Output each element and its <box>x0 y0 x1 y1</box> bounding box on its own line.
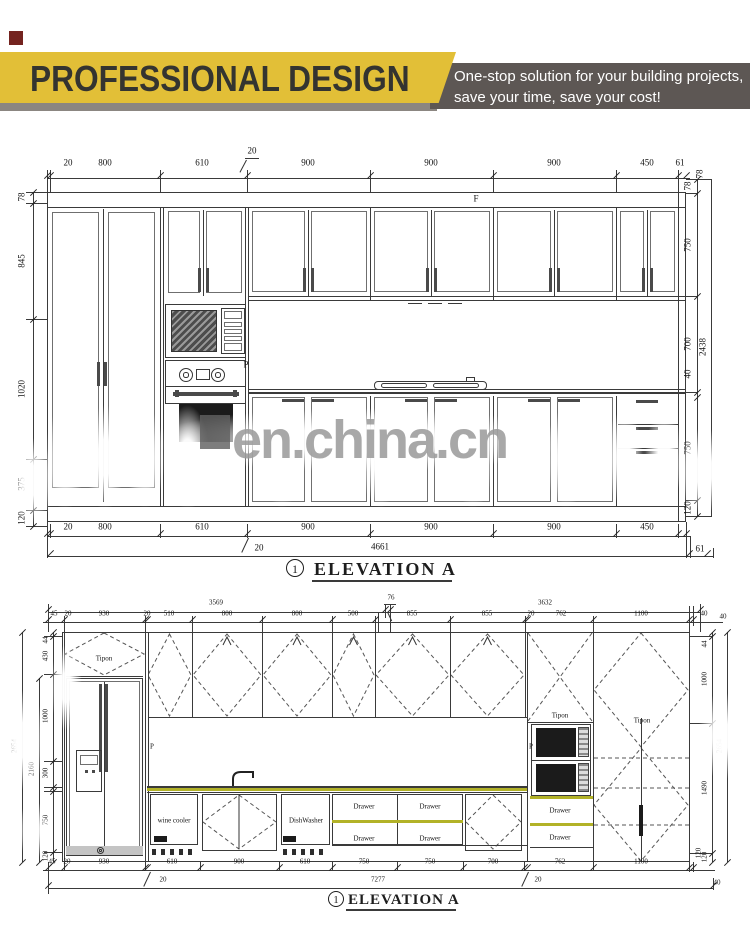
pantry-handle <box>639 805 643 836</box>
cad-line <box>686 179 712 180</box>
dim-label: 800 <box>98 159 112 168</box>
dim-label: 900 <box>301 159 315 168</box>
dim-label: 900 <box>547 159 561 168</box>
cabinet-door <box>311 211 367 292</box>
cornice-label: F <box>473 195 478 204</box>
cad-line <box>527 632 528 862</box>
cad-line <box>148 632 149 862</box>
dim-label: 300 <box>43 768 50 779</box>
dim-label: 120 <box>684 501 693 515</box>
cad-line <box>616 396 617 506</box>
dim-label: 76 <box>388 595 395 602</box>
dim-label: 610 <box>195 159 209 168</box>
cabinet-door <box>206 211 242 293</box>
dim-label: 430 <box>43 651 50 662</box>
cooktop-burner <box>433 383 479 388</box>
dim-label: 750 <box>684 238 693 252</box>
dim-leader <box>143 872 151 887</box>
sink-cabinet <box>202 794 277 851</box>
cad-line <box>39 678 40 862</box>
cad-line <box>192 632 193 717</box>
door-handle <box>435 399 457 402</box>
cad-line <box>47 522 48 558</box>
cad-line <box>145 632 146 862</box>
dim-label: 375 <box>18 477 27 491</box>
dim-label: 750 <box>43 815 50 826</box>
cad-line <box>248 296 686 297</box>
cad-line <box>428 303 442 304</box>
dim-label: 20 <box>255 544 264 553</box>
cad-line <box>103 209 104 502</box>
cad-line <box>554 210 555 296</box>
dim-label: 7277 <box>371 877 385 884</box>
dim-label: 78 <box>684 182 693 191</box>
drawer-label: Drawer <box>354 836 375 843</box>
microwave-button <box>224 311 242 319</box>
cad-line <box>709 622 723 623</box>
cabinet-door <box>620 211 644 292</box>
cad-line <box>47 556 713 557</box>
cad-line <box>308 210 309 296</box>
dim-label: 3569 <box>209 600 223 607</box>
cad-line <box>713 548 714 558</box>
microwave-button <box>224 343 242 351</box>
cad-line <box>375 632 376 717</box>
dim-label: 610 <box>195 523 209 532</box>
fridge-base <box>66 846 143 855</box>
dim-label: 762 <box>556 611 567 618</box>
oven-controls <box>578 727 589 757</box>
header-title: PROFESSIONAL DESIGN <box>30 58 410 100</box>
dim-label: 1000 <box>43 709 50 723</box>
corner-accent-square <box>9 31 23 45</box>
dim-label: 61 <box>696 545 705 554</box>
cad-line <box>641 718 642 862</box>
dim-label: 900 <box>301 523 315 532</box>
dim-leader <box>521 872 529 887</box>
panel-label: P <box>529 744 533 751</box>
dim-label: 855 <box>482 611 493 618</box>
door-handle <box>198 268 201 292</box>
dim-label: 900 <box>424 159 438 168</box>
dim-label: 20 <box>144 611 151 618</box>
door-handle <box>282 399 304 402</box>
dim-tick <box>724 859 731 866</box>
dim-label: 800 <box>292 611 303 618</box>
dim-label: 20 <box>248 147 257 156</box>
cad-line <box>647 210 648 296</box>
dim-label: 120 <box>696 848 703 859</box>
cad-line <box>527 722 593 723</box>
cabinet-door <box>374 211 428 292</box>
tagline-line-1: One-stop solution for your building proj… <box>430 63 750 87</box>
dim-label: 2160 <box>29 762 36 776</box>
door-handle <box>405 399 427 402</box>
dim-label: 20 <box>528 611 535 618</box>
watermark: en.china.cn <box>200 412 507 468</box>
tipon-label: Tipon <box>552 713 568 720</box>
dim-label: 20 <box>535 877 542 884</box>
dim-label: 500 <box>348 611 359 618</box>
tipon-label: Tipon <box>96 656 112 663</box>
cad-line <box>431 210 432 296</box>
door-handle <box>97 362 100 386</box>
cad-line <box>686 516 712 517</box>
tagline-line-2: save your time, save your cost! <box>430 87 750 108</box>
dim-label: 450 <box>640 159 654 168</box>
cad-line <box>66 676 143 677</box>
dim-label: 40 <box>701 611 708 618</box>
dim-label: 800 <box>98 523 112 532</box>
cad-line <box>593 632 594 862</box>
cad-line <box>47 506 686 507</box>
dim-label: 120 <box>18 511 27 525</box>
dim-label: 750 <box>359 859 370 866</box>
dim-label: 20 <box>64 523 73 532</box>
cad-line <box>47 207 686 208</box>
dim-leader <box>239 160 246 173</box>
base-cabinet <box>465 794 522 851</box>
cooktop-control <box>466 377 475 382</box>
cad-line <box>712 632 713 862</box>
dim-ext <box>26 203 47 204</box>
watermark-logo-square <box>200 415 230 449</box>
cad-line <box>53 632 54 862</box>
fridge-handle <box>105 684 108 772</box>
cad-line <box>525 632 526 717</box>
dim-ext <box>690 723 712 724</box>
dim-label: 20 <box>64 859 71 866</box>
wine-cooler-control <box>154 836 167 842</box>
dim-label: 700 <box>684 337 693 351</box>
dim-label: 44 <box>702 641 709 648</box>
oven-window <box>536 728 576 757</box>
dispenser-button <box>92 770 95 773</box>
oven-controls <box>578 763 589 792</box>
cad-line <box>408 303 422 304</box>
dim-ext <box>26 319 47 320</box>
drawer-label: Drawer <box>420 804 441 811</box>
elevation-1-number-circle: 1 <box>286 559 304 577</box>
cabinet-door <box>497 211 551 292</box>
door-handle <box>528 399 550 402</box>
dim-label: 930 <box>99 859 110 866</box>
elevation-2-number-circle: 1 <box>328 891 344 907</box>
dim-label: 900 <box>547 523 561 532</box>
dishwasher-control <box>283 836 296 842</box>
drawer-label: Drawer <box>420 836 441 843</box>
cad-line <box>384 604 396 605</box>
dim-label: 61 <box>676 159 685 168</box>
dim-label: 855 <box>407 611 418 618</box>
dishwasher-label: DishWasher <box>289 818 323 825</box>
door-handle <box>636 427 658 430</box>
cad-line <box>147 792 527 793</box>
cad-line <box>165 386 246 387</box>
cabinet-door <box>52 212 99 488</box>
dim-ext <box>26 192 47 193</box>
vent-grill <box>283 849 328 855</box>
cad-line <box>686 522 687 558</box>
cabinet-door <box>168 211 200 293</box>
drawer-divider-highlight <box>530 796 593 799</box>
elevation-2-title: ELEVATION A <box>348 892 460 909</box>
cabinet-door <box>252 211 305 292</box>
microwave-button <box>224 322 242 327</box>
dim-label: 20 <box>65 611 72 618</box>
page: One-stop solution for your building proj… <box>0 0 750 928</box>
microwave-window <box>171 310 217 352</box>
dim-label: 610 <box>300 859 311 866</box>
cad-line <box>203 210 204 296</box>
fridge-wheel <box>97 847 104 854</box>
cad-line <box>390 612 700 613</box>
dim-ext <box>690 636 712 637</box>
dim-ext <box>26 459 47 460</box>
dim-label: 1000 <box>702 672 709 686</box>
dim-label: 762 <box>555 859 566 866</box>
door-handle <box>104 362 107 386</box>
dim-label: 40 <box>720 614 727 621</box>
cabinet-door <box>557 211 613 292</box>
dim-label: 1490 <box>702 781 709 795</box>
dim-tick <box>709 859 716 866</box>
cad-line <box>48 888 713 889</box>
dim-label: 2654 <box>717 739 724 753</box>
dim-label: 1020 <box>18 380 27 398</box>
microwave-button <box>224 329 242 334</box>
cad-line <box>262 632 263 717</box>
dim-label: 20 <box>160 877 167 884</box>
cad-line <box>618 448 678 449</box>
tipon-label: Tipon <box>634 718 650 725</box>
dim-label: 750 <box>684 441 693 455</box>
cabinet-door <box>108 212 155 488</box>
dim-label: 45 <box>51 611 58 618</box>
dim-leader <box>241 538 249 553</box>
drawer-label: Drawer <box>550 835 571 842</box>
vent-grill <box>152 849 196 855</box>
panel-label: P <box>150 744 154 751</box>
cad-line <box>22 632 23 862</box>
dim-label: 800 <box>222 611 233 618</box>
door-handle <box>311 268 314 292</box>
cad-line <box>690 536 691 558</box>
cad-line <box>245 158 259 159</box>
oven-window <box>536 764 576 792</box>
cad-line <box>616 207 617 300</box>
door-handle <box>549 268 552 292</box>
drawer-divider-highlight <box>332 820 463 823</box>
door-handle <box>558 399 580 402</box>
cad-line <box>493 207 494 300</box>
dim-label: 450 <box>640 523 654 532</box>
door-handle <box>206 268 209 292</box>
dim-label: 78 <box>696 170 705 179</box>
cad-line <box>332 632 333 717</box>
header-yellow-ribbon: PROFESSIONAL DESIGN <box>0 52 456 103</box>
cabinet-door <box>434 211 490 292</box>
dim-label: 845 <box>18 254 27 268</box>
door-handle <box>303 268 306 292</box>
elevation-1-title-underline <box>312 580 452 582</box>
dim-label: 610 <box>167 859 178 866</box>
dim-label: 1100 <box>634 859 648 866</box>
cad-line <box>448 303 462 304</box>
door-handle <box>636 451 658 454</box>
door-handle <box>312 399 334 402</box>
elevation-2-title-underline <box>346 909 456 911</box>
door-handle <box>650 268 653 292</box>
dim-label: 45 <box>49 859 56 866</box>
oven-display <box>196 369 210 380</box>
dim-label: 44 <box>43 637 50 644</box>
cad-line <box>33 192 34 526</box>
cad-line <box>370 207 371 300</box>
door-handle <box>426 268 429 292</box>
cad-line <box>248 300 686 301</box>
dim-label: 2654 <box>12 739 19 753</box>
cad-line <box>148 717 527 718</box>
door-handle <box>434 268 437 292</box>
cad-line <box>248 392 686 394</box>
dim-tick <box>19 859 26 866</box>
door-handle <box>642 268 645 292</box>
header-shadow-strip <box>0 103 437 111</box>
cad-line <box>450 632 451 717</box>
dim-label: 3632 <box>538 600 552 607</box>
dim-label: 1100 <box>634 611 648 618</box>
dim-ext <box>26 510 47 511</box>
dim-label: 510 <box>164 611 175 618</box>
countertop-highlight <box>147 788 527 791</box>
wine-cooler-label: wine cooler <box>158 818 191 825</box>
drawer-divider-highlight <box>530 823 593 826</box>
drawer-label: Drawer <box>550 808 571 815</box>
dim-label: 900 <box>424 523 438 532</box>
dispenser-button <box>85 770 88 773</box>
cad-line <box>64 632 65 862</box>
dim-label: 2438 <box>699 338 708 356</box>
dim-label: 750 <box>425 859 436 866</box>
cad-line <box>530 847 593 848</box>
blur-patch <box>698 692 746 780</box>
microwave-button <box>224 336 242 341</box>
dim-label: 40 <box>714 880 721 887</box>
dim-label: 20 <box>64 159 73 168</box>
dim-label: 4661 <box>371 543 389 552</box>
drawer-label: Drawer <box>354 804 375 811</box>
door-handle <box>636 400 658 403</box>
oven <box>165 360 246 404</box>
cad-line <box>727 632 728 862</box>
cad-line <box>618 424 678 425</box>
dim-label: 930 <box>99 611 110 618</box>
dim-label: 900 <box>234 859 245 866</box>
header-tagline-band: One-stop solution for your building proj… <box>430 63 750 109</box>
cabinet-door <box>650 211 675 292</box>
elevation-1-title: ELEVATION A <box>314 559 457 580</box>
cad-line <box>711 179 712 516</box>
cad-line <box>678 192 679 522</box>
oven-knob <box>211 368 225 382</box>
dispenser-display <box>80 755 98 765</box>
dim-label: 700 <box>488 859 499 866</box>
door-handle <box>557 268 560 292</box>
dim-label: 78 <box>18 193 27 202</box>
dim-ext <box>26 526 47 527</box>
dim-label: 40 <box>684 370 693 379</box>
dim-label: 120 <box>702 852 709 863</box>
panel-label: P <box>243 361 248 370</box>
watermark-text: en.china.cn <box>232 412 507 468</box>
oven-knob <box>179 368 193 382</box>
cooktop-burner <box>381 383 427 388</box>
